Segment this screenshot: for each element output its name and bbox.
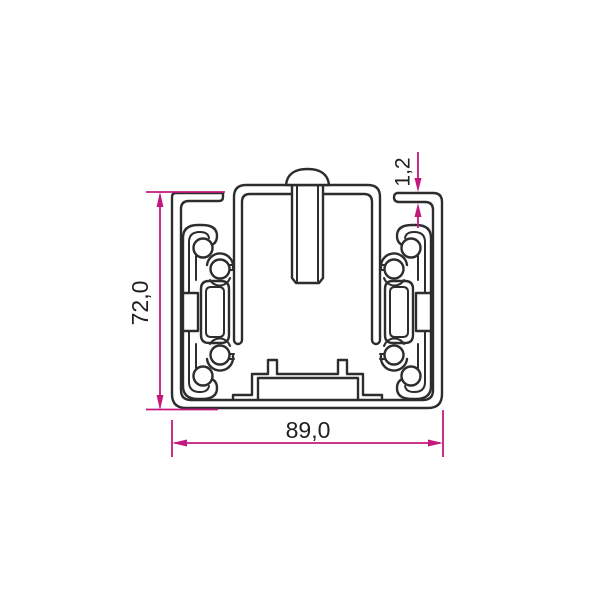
ball-bearing [385,346,404,365]
ball-bearing [211,346,230,365]
ball-bearing [402,239,421,258]
profile-linework [172,169,442,408]
arrowhead-up [157,192,164,207]
thickness-dimension-label: 1,2 [392,157,415,186]
width-dimension-label: 89,0 [286,417,331,443]
drawer-web-inner [206,287,224,337]
height-dimension-label: 72,0 [127,281,153,326]
ball-bearing [402,367,421,386]
wall-bracket [183,293,198,331]
arrowhead-down [157,395,164,410]
arrowhead-up [415,203,422,217]
drawer-web-inner [390,287,408,337]
pedestal-outer [233,360,382,400]
arrowhead-left [172,440,187,447]
ball-bearing [211,260,230,279]
ball-bearing [194,367,213,386]
bolt-head [286,169,329,185]
dimension-thickness [415,152,422,228]
slide-mechanism-left [183,225,234,399]
ball-bearing [194,239,213,258]
arrowhead-down [415,178,422,192]
slide-mechanism-right [380,225,431,399]
technical-drawing-page: 72,0 89,0 1,2 [0,0,600,600]
ball-bearing [385,260,404,279]
wall-bracket [416,293,431,331]
arrowhead-right [428,440,443,447]
pedestal-inner [258,378,358,400]
drawer-slide-cross-section-drawing: 72,0 89,0 1,2 [0,0,600,600]
